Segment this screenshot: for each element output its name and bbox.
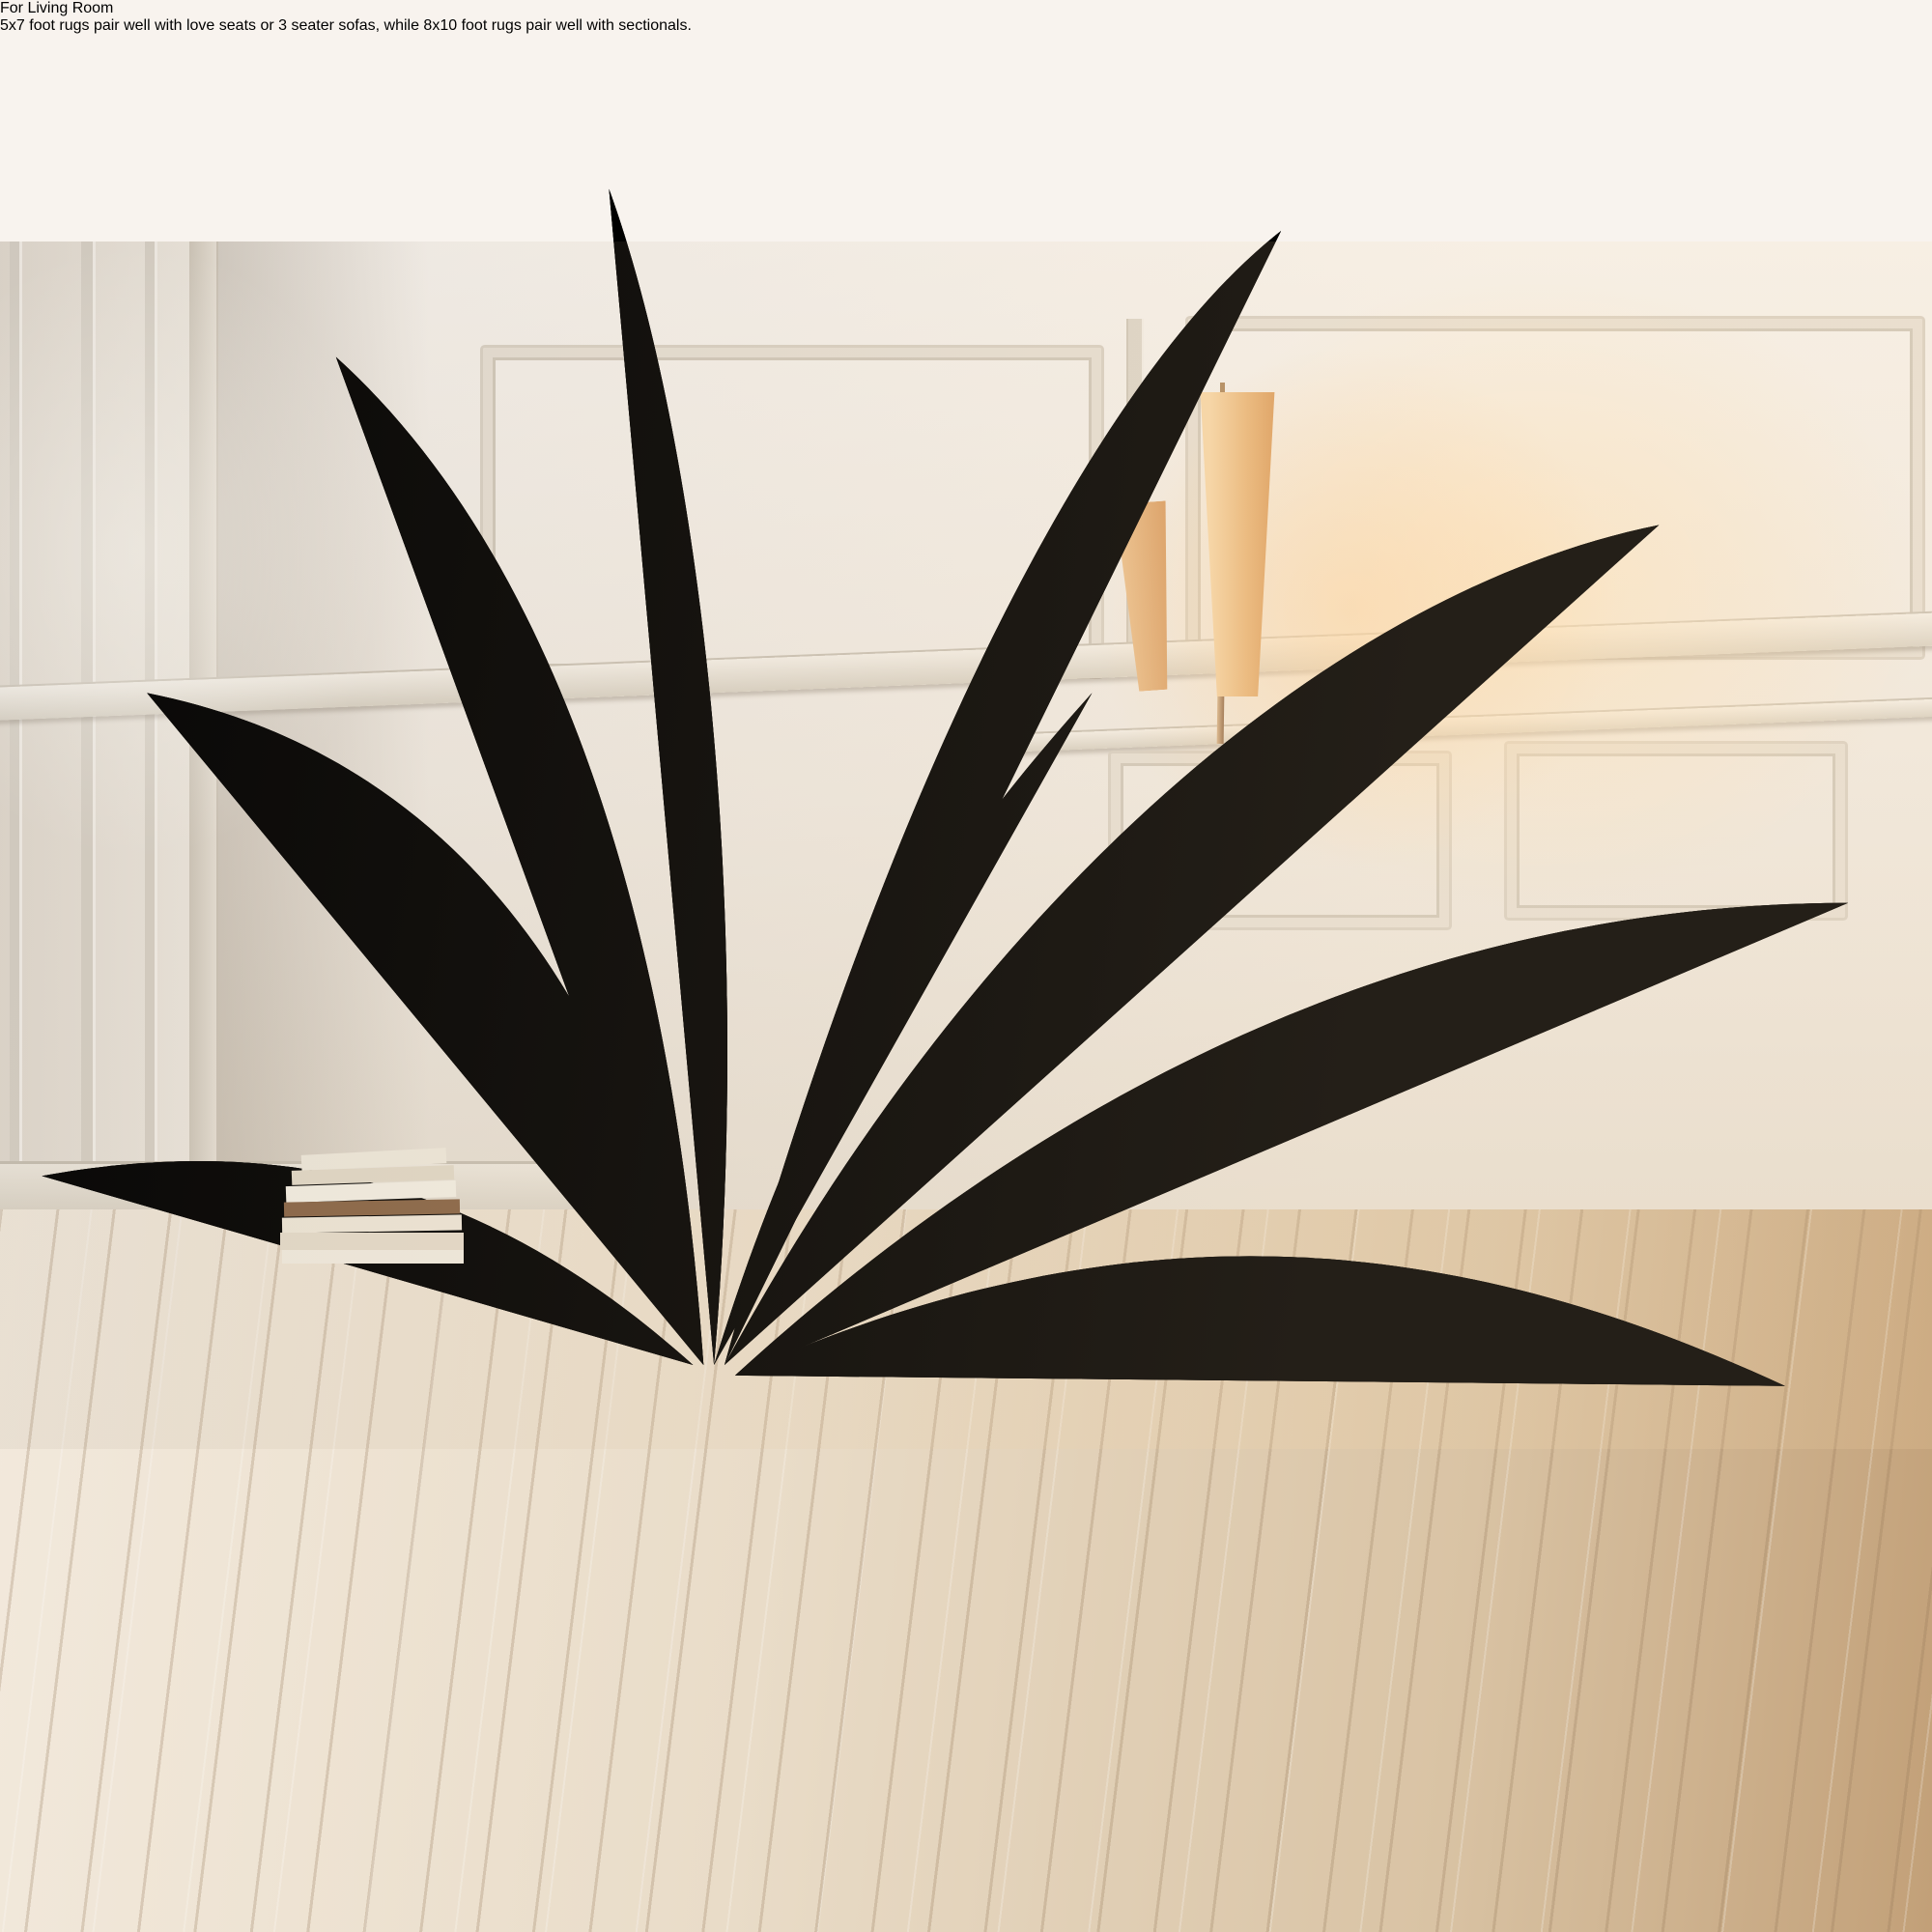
- living-room-photo: [0, 0, 1932, 1932]
- photo-tint: [0, 241, 1932, 1449]
- product-infographic: For Living Room 5x7 foot rugs pair well …: [0, 0, 1932, 1932]
